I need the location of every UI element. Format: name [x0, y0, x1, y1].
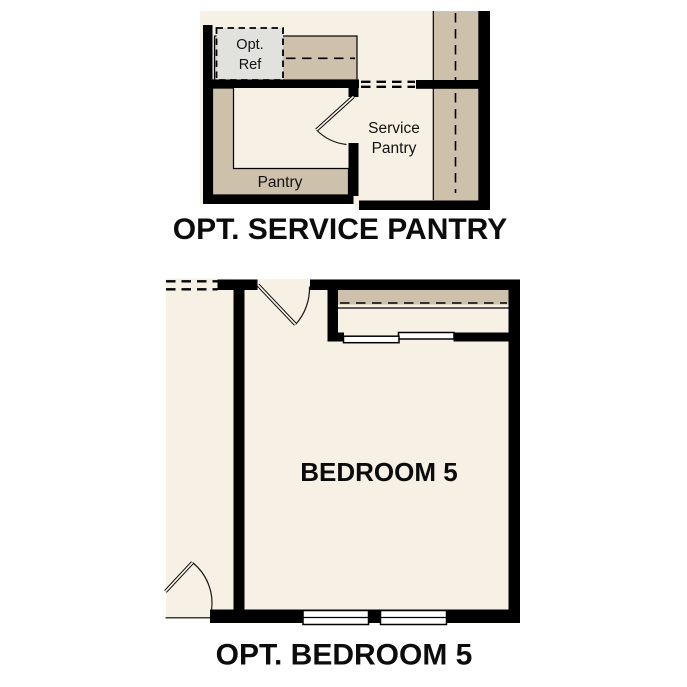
- cabinet-run: [433, 11, 478, 201]
- opt-ref-label-line2: Ref: [239, 57, 263, 73]
- service-pantry-caption: OPT. SERVICE PANTRY: [173, 213, 508, 246]
- left-wall: [203, 25, 213, 204]
- closet-bypass-door-left: [344, 336, 400, 343]
- door-jamb-wall: [349, 88, 359, 97]
- bedroom-left-wall: [234, 280, 245, 624]
- bedroom-floor: [233, 279, 520, 623]
- floorplan-page: Opt. Ref Pantry Service Pantry OPT. SERV…: [0, 0, 687, 687]
- service-pantry-label-line2: Pantry: [372, 140, 417, 157]
- window-left: [303, 611, 369, 625]
- bedroom-caption: OPT. BEDROOM 5: [216, 639, 473, 672]
- closet-bypass-door-right: [399, 333, 455, 340]
- bottom-wall-left: [203, 195, 354, 204]
- closet-front-wall-right: [454, 333, 509, 342]
- hallway-floor: [166, 279, 234, 619]
- opt-ref-label-line1: Opt.: [236, 37, 263, 53]
- top-wall-right-segment: [310, 280, 519, 291]
- bottom-wall-right: [359, 201, 490, 211]
- closet-front-wall-left: [328, 333, 345, 342]
- service-pantry-plan: Opt. Ref Pantry Service Pantry OPT. SERV…: [173, 11, 508, 246]
- pantry-label: Pantry: [258, 174, 303, 191]
- bedroom-label: BEDROOM 5: [300, 457, 457, 487]
- right-wall: [478, 11, 490, 210]
- window-right: [381, 611, 447, 625]
- bedroom-right-wall: [509, 280, 521, 624]
- service-pantry-label-line1: Service: [368, 120, 420, 137]
- upper-wall: [203, 80, 359, 89]
- pantry-right-wall: [349, 143, 359, 196]
- bedroom-plan: BEDROOM 5 OPT. BEDROOM 5: [166, 279, 521, 672]
- floorplan-canvas: Opt. Ref Pantry Service Pantry OPT. SERV…: [0, 0, 687, 687]
- upper-wall-right-stub: [416, 80, 479, 89]
